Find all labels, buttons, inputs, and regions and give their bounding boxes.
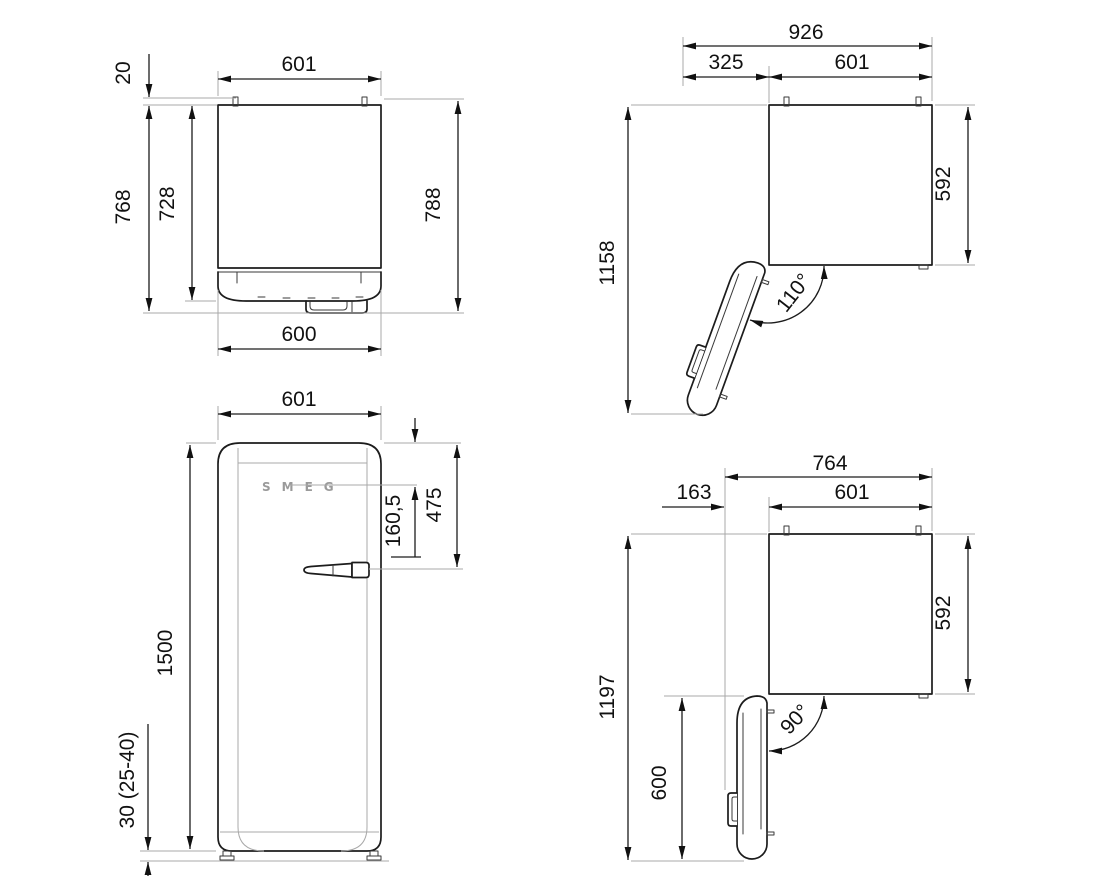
dim-label: 1158: [596, 240, 619, 285]
handle-inner-line: [310, 302, 347, 310]
dim-label: 601: [281, 388, 316, 411]
cabinet-outline: [218, 105, 381, 268]
view-top-open-90: 90° 764 163 601 1197 600 592: [596, 452, 975, 861]
foot-base-left: [220, 856, 234, 860]
view-front: SMEG 601 160,5 475 1500 30 (25-40): [116, 388, 463, 876]
dim-label: 592: [932, 595, 955, 630]
dim-label: 160,5: [382, 495, 405, 548]
view-top-closed: 601 20 768 728 788 600: [112, 53, 464, 356]
dimension-drawing-svg: 601 20 768 728 788 600: [0, 0, 1111, 893]
dimension-drawing-canvas: 601 20 768 728 788 600: [0, 0, 1111, 893]
handle-outline: [306, 301, 367, 313]
dim-label: 728: [156, 186, 179, 221]
front-handle-bar: [304, 564, 352, 578]
dim-label: 475: [423, 487, 446, 522]
dim-label: 601: [834, 481, 869, 504]
front-handle-mount: [352, 563, 369, 578]
dim-label: 601: [834, 51, 869, 74]
dim-label: 163: [676, 481, 711, 504]
dim-label: 1197: [596, 674, 619, 719]
foot-stem-right: [370, 851, 378, 856]
fridge-body-outline: [218, 443, 381, 851]
dim-label: 788: [422, 187, 445, 222]
dim-label: 764: [812, 452, 847, 475]
dim-label: 600: [281, 323, 316, 346]
dim-label: 601: [281, 53, 316, 76]
dim-label: 592: [932, 166, 955, 201]
cabinet-outline: [769, 534, 932, 694]
door-edge-pin-2: [767, 832, 774, 835]
smeg-logo: SMEG: [262, 480, 345, 494]
door-edge-pin-1: [761, 279, 769, 284]
dim-label: 1500: [154, 630, 177, 677]
view-top-open-110: 110° 926 325 601 1158 592: [596, 21, 975, 422]
dim-label: 30 (25-40): [116, 732, 139, 829]
door-edge-pin-2: [720, 394, 728, 399]
open-door-group: [675, 253, 774, 422]
cabinet-outline: [769, 105, 932, 265]
open-door-group: [728, 696, 774, 859]
door-corner-arc-left: [238, 827, 264, 851]
dim-label: 600: [648, 765, 671, 800]
door-edge-pin-1: [767, 710, 774, 713]
door-corner-arc-right: [341, 827, 367, 851]
dim-label: 926: [788, 21, 823, 44]
foot-base-right: [367, 856, 381, 860]
dim-label: 325: [708, 51, 743, 74]
dim-label: 768: [112, 189, 135, 224]
door-front-dashes: [258, 297, 363, 298]
door-slab-outline: [683, 256, 767, 419]
dim-label: 20: [112, 61, 135, 84]
dim-label-angle: 110°: [772, 269, 816, 316]
door-slab-outline: [737, 696, 767, 859]
